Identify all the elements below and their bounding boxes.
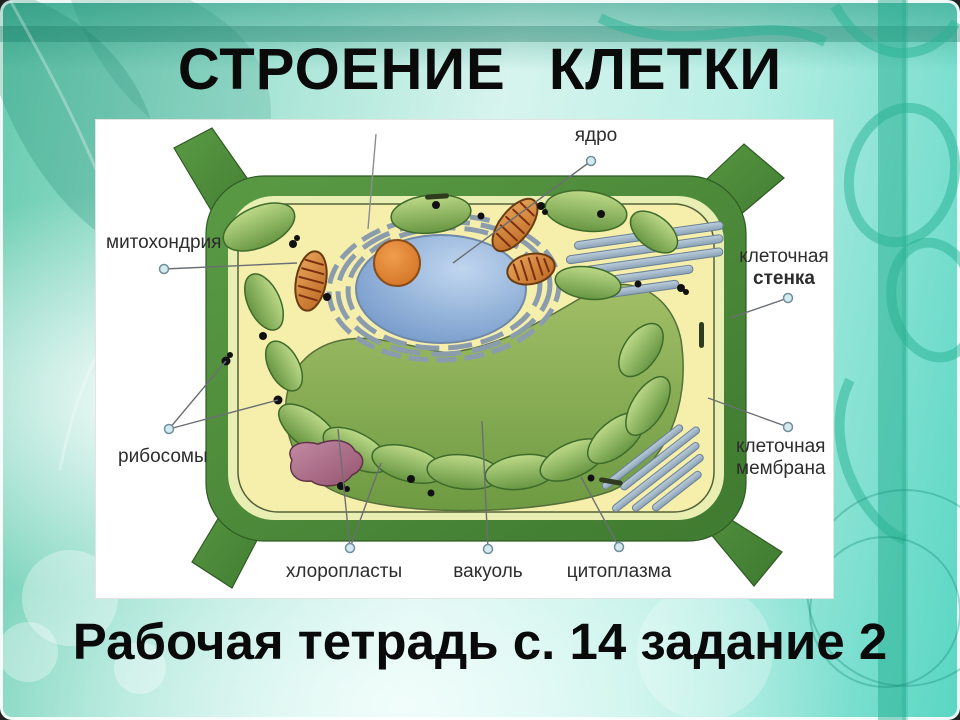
nucleolus-shape — [374, 240, 420, 286]
label-cytoplasm: цитоплазма — [559, 561, 679, 583]
label-cell-wall-line1: клеточная — [739, 246, 828, 267]
label-cell-wall: клеточная стенка — [734, 246, 834, 291]
label-cell-membrane-line2: мембрана — [736, 458, 826, 479]
slide-title: СТРОЕНИЕ КЛЕТКИ — [0, 36, 960, 103]
label-mitochondrion: митохондрия — [106, 232, 236, 254]
cell-diagram-panel: ядро митохондрия рибосомы клеточная стен… — [95, 119, 834, 599]
slide-caption: Рабочая тетрадь с. 14 задание 2 — [0, 612, 960, 671]
label-chloroplasts: хлоропласты — [284, 561, 404, 583]
label-cell-wall-line2: стенка — [753, 268, 815, 289]
plant-cell-illustration — [96, 120, 833, 598]
label-ribosomes: рибосомы — [118, 446, 238, 468]
slide: СТРОЕНИЕ КЛЕТКИ — [0, 0, 960, 720]
label-cell-membrane: клеточная мембрана — [736, 436, 836, 481]
label-nucleus: ядро — [551, 125, 641, 147]
label-vacuole: вакуоль — [438, 561, 538, 583]
label-cell-membrane-line1: клеточная — [736, 436, 825, 457]
